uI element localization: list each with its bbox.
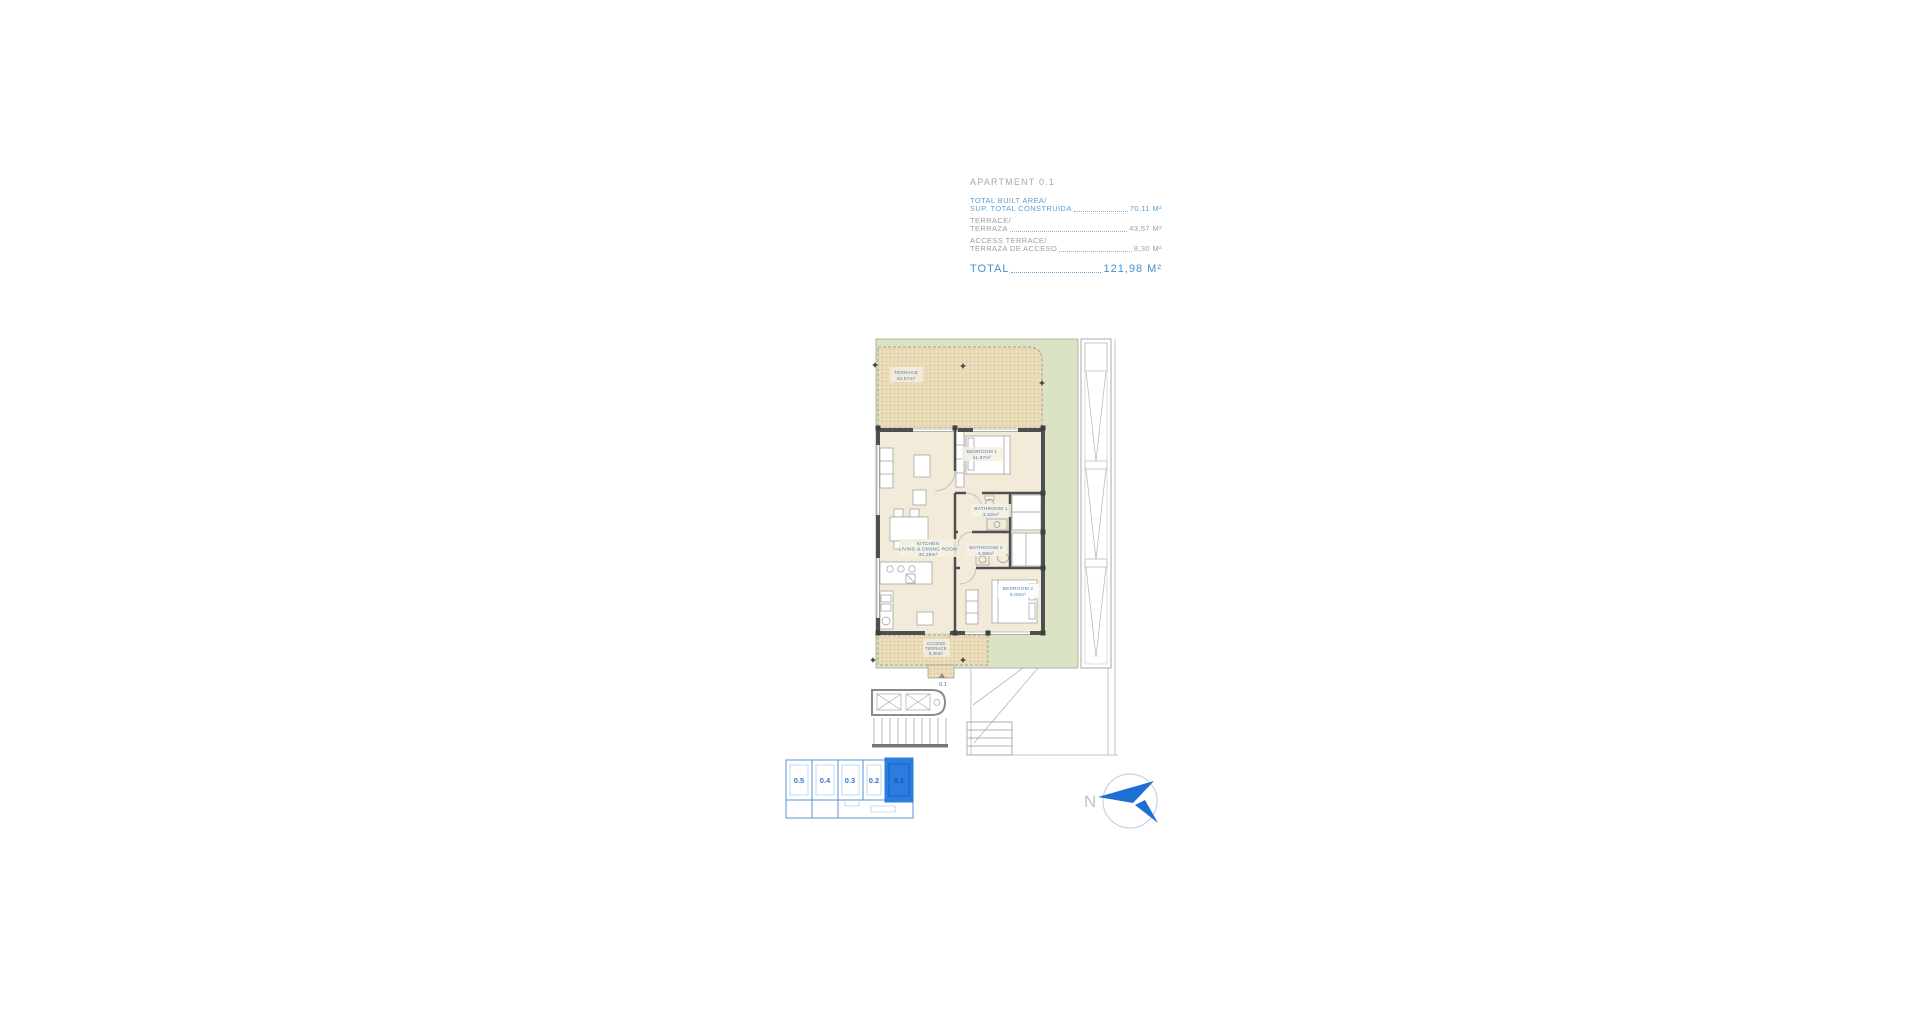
bathroom1-area: 3,52m² [983, 512, 999, 518]
kitchen-label-2: LIVING & DINING ROOM [899, 547, 958, 553]
area-row-access-value: 8,30 M² [1134, 245, 1162, 253]
floor-plan: TERRACE 43,57m² BEDROOM 1 11,87m² BATHRO… [870, 333, 1125, 763]
bathroom2-area: 4,58m² [978, 551, 994, 557]
north-label: N [1084, 792, 1096, 811]
page: APARTMENT 0.1 TOTAL BUILT AREA/ SUP. TOT… [0, 0, 1920, 1024]
area-row-terrace-value: 43,57 M² [1129, 225, 1162, 233]
planter [872, 690, 945, 715]
bedroom1-area: 11,87m² [973, 455, 992, 461]
terrace-area [878, 347, 1042, 428]
area-summary: APARTMENT 0.1 TOTAL BUILT AREA/ SUP. TOT… [970, 177, 1162, 275]
dotted-leader [1011, 272, 1101, 273]
kitchen-area: 30,29m² [919, 552, 938, 558]
dotted-leader [1010, 231, 1127, 232]
kitchen-label-1: KITCHEN [917, 541, 940, 547]
apartment-title: APARTMENT 0.1 [970, 177, 1162, 187]
bedroom2-label: BEDROOM 2 [1003, 586, 1034, 592]
pergola-strip [1081, 339, 1111, 668]
keyplan-unit-05: 0.5 [794, 776, 804, 785]
bedroom1-label: BEDROOM 1 [967, 449, 998, 455]
keyplan-unit-04: 0.4 [820, 776, 831, 785]
terrace-label: TERRACE [894, 370, 918, 376]
bathroom1-label: BATHROOM 1 [974, 506, 1007, 512]
area-row-built-value: 70,11 M² [1130, 205, 1162, 213]
area-row-terrace: TERRACE/ TERRAZA 43,57 M² [970, 217, 1162, 233]
area-row-access-terrace: ACCESS TERRACE/ TERRAZA DE ACCESO 8,30 M… [970, 237, 1162, 253]
dotted-leader [1074, 211, 1128, 212]
area-row-access-es: TERRAZA DE ACCESO [970, 245, 1057, 253]
area-row-built: TOTAL BUILT AREA/ SUP. TOTAL CONSTRUIDA … [970, 197, 1162, 213]
bathroom2-label: BATHROOM 2 [969, 545, 1002, 551]
keyplan-unit-01: 0.1 [894, 776, 904, 785]
total-label: TOTAL [970, 263, 1009, 275]
area-row-terrace-es: TERRAZA [970, 225, 1008, 233]
stairs-left [872, 718, 948, 748]
north-compass: N [1078, 763, 1178, 838]
bedroom2-area: 9,00m² [1010, 592, 1026, 598]
dotted-leader [1059, 251, 1132, 252]
access-terrace-area: 8,30m² [929, 651, 944, 656]
total-value: 121,98 M² [1103, 263, 1162, 275]
area-row-built-es: SUP. TOTAL CONSTRUIDA [970, 205, 1072, 213]
area-total-row: TOTAL 121,98 M² [970, 263, 1162, 275]
entry-unit-number: 0.1 [939, 682, 947, 688]
keyplan-unit-03: 0.3 [845, 776, 855, 785]
keyplan-unit-02: 0.2 [869, 776, 879, 785]
key-plan: 0.5 0.4 0.3 0.2 0.1 [783, 752, 918, 827]
stairs-right [967, 722, 1012, 755]
terrace-area: 43,57m² [897, 376, 916, 382]
